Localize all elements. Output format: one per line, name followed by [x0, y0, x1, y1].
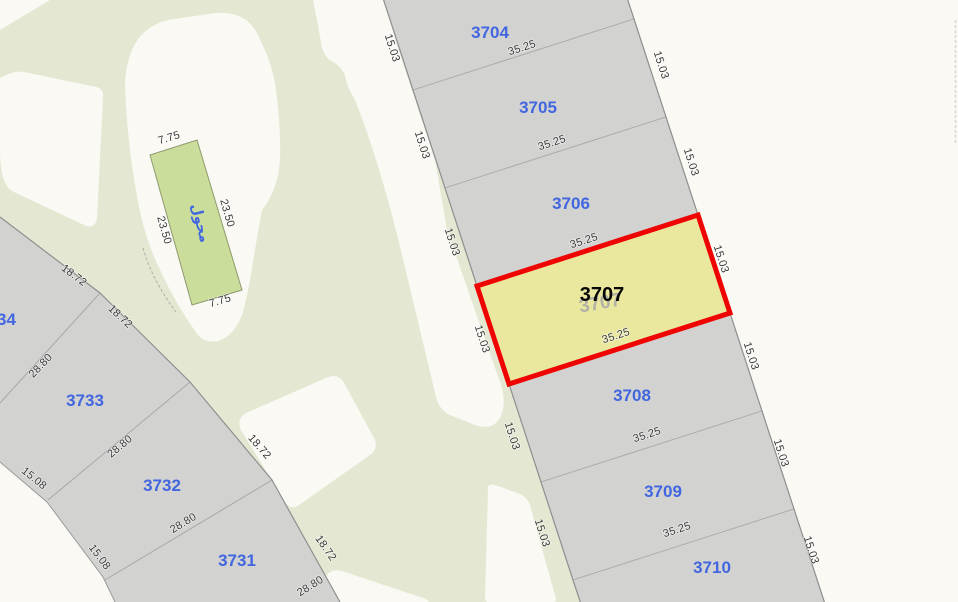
parcel-3706-label: 3706 — [552, 194, 590, 213]
parcel-3709-label: 3709 — [644, 482, 682, 501]
parcel-3710-label: 3710 — [693, 558, 731, 577]
parcel-3704-label: 3704 — [471, 23, 509, 42]
parcel-3734-label: 3734 — [0, 310, 16, 329]
parcel-3733-label: 3733 — [66, 391, 104, 410]
map-viewport[interactable]: 3704 3705 3706 3708 3709 3710 3734 3733 … — [0, 0, 958, 602]
parcel-3708-label: 3708 — [613, 386, 651, 405]
parcel-3707-label: 3707 — [580, 284, 625, 306]
parcel-3705-label: 3705 — [519, 98, 557, 117]
parcel-3732-label: 3732 — [143, 476, 181, 495]
parcel-3731-label: 3731 — [218, 551, 256, 570]
cadastral-map-canvas[interactable]: 3704 3705 3706 3708 3709 3710 3734 3733 … — [0, 0, 958, 602]
